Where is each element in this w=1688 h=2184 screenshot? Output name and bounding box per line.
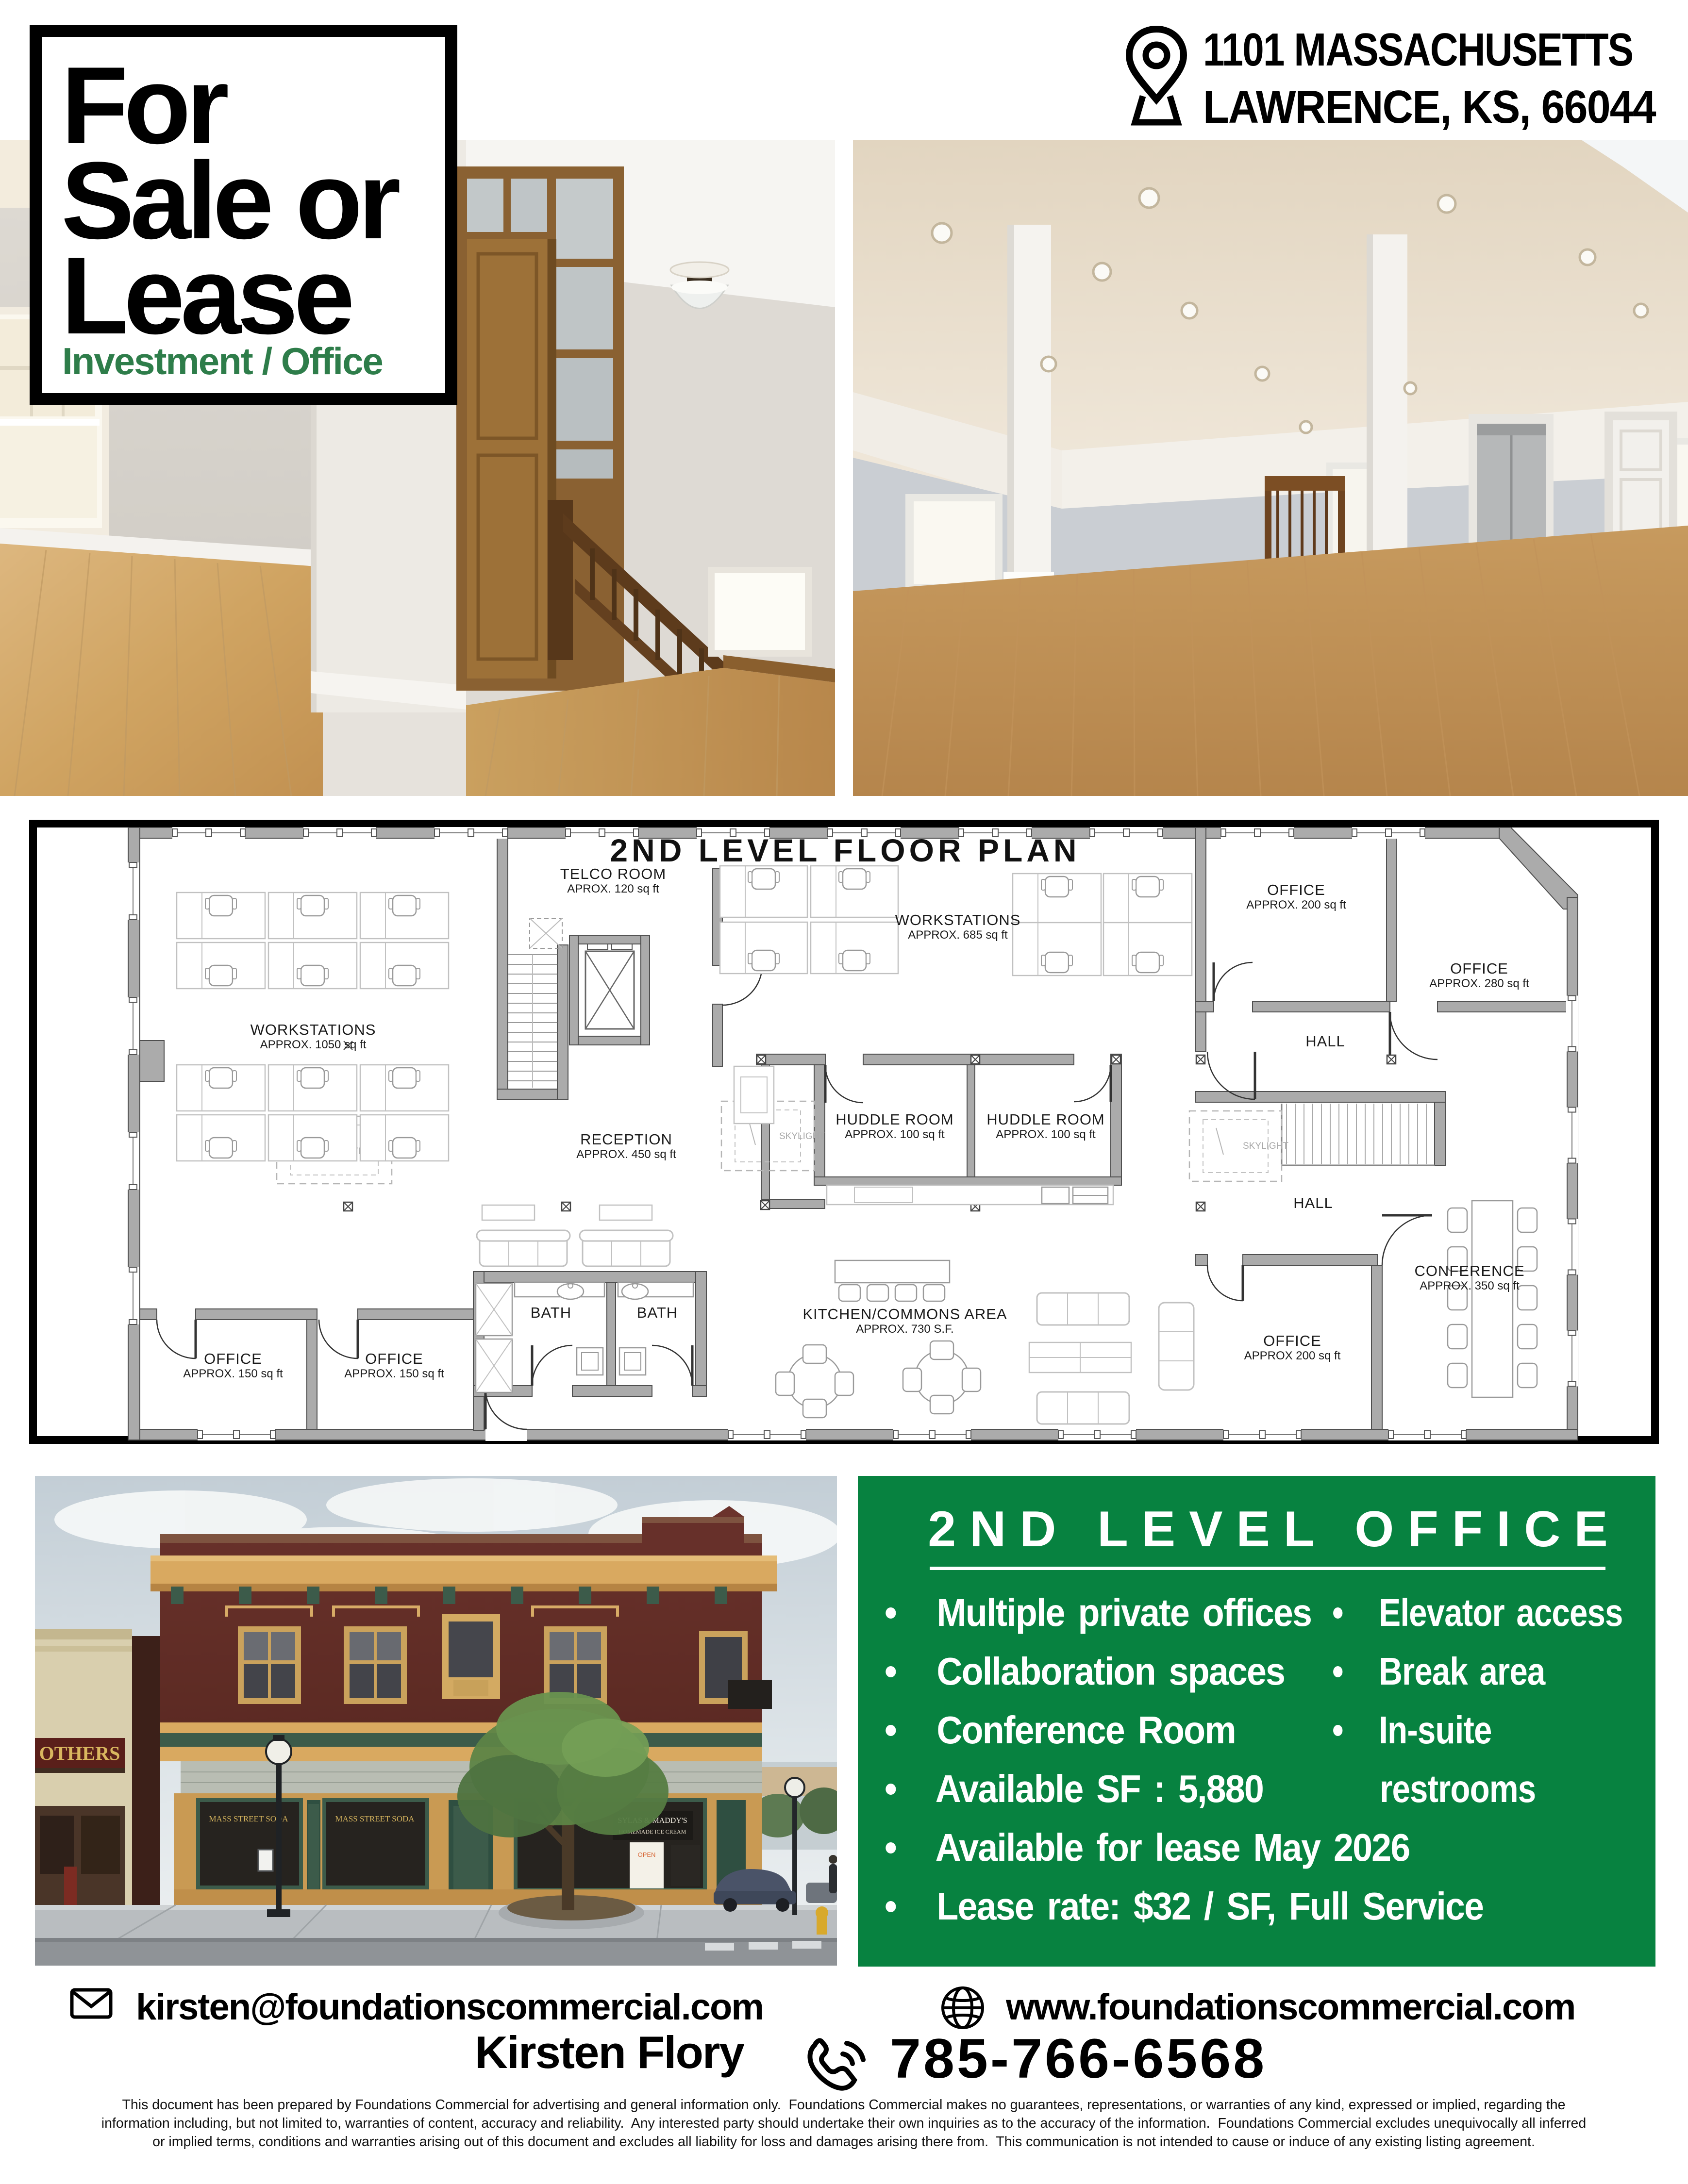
svg-text:OFFICE: OFFICE (1267, 881, 1325, 898)
svg-text:OTHERS: OTHERS (39, 1742, 120, 1764)
svg-text:APPROX. 100 sq ft: APPROX. 100 sq ft (845, 1128, 945, 1141)
svg-text:OPEN: OPEN (638, 1851, 656, 1858)
svg-text:APPROX. 280 sq ft: APPROX. 280 sq ft (1429, 977, 1529, 990)
svg-text:TELCO ROOM: TELCO ROOM (560, 865, 666, 882)
svg-text:WORKSTATIONS: WORKSTATIONS (251, 1021, 376, 1038)
svg-text:BATH: BATH (637, 1304, 678, 1321)
svg-text:OFFICE: OFFICE (1263, 1332, 1321, 1349)
svg-text:SKYLIGHT: SKYLIGHT (1243, 1141, 1288, 1151)
svg-text:RECEPTION: RECEPTION (580, 1131, 672, 1148)
svg-text:OFFICE: OFFICE (365, 1350, 423, 1367)
svg-text:APPROX. 1050 sq ft: APPROX. 1050 sq ft (260, 1038, 367, 1051)
svg-text:OFFICE: OFFICE (204, 1350, 262, 1367)
svg-text:KITCHEN/COMMONS AREA: KITCHEN/COMMONS AREA (802, 1306, 1007, 1323)
svg-text:APPROX. 730 S.F.: APPROX. 730 S.F. (856, 1323, 953, 1336)
svg-text:APPROX. 200 sq ft: APPROX. 200 sq ft (1246, 898, 1346, 911)
svg-text:APPROX. 685 sq ft: APPROX. 685 sq ft (908, 928, 1008, 942)
svg-text:MASS STREET SODA: MASS STREET SODA (335, 1814, 415, 1823)
svg-text:APPROX. 450 sq ft: APPROX. 450 sq ft (576, 1148, 676, 1161)
svg-text:APPROX. 350 sq ft: APPROX. 350 sq ft (1420, 1279, 1520, 1292)
svg-text:APPROX 200 sq ft: APPROX 200 sq ft (1244, 1349, 1341, 1362)
svg-text:SKYLIGHT: SKYLIGHT (779, 1131, 825, 1142)
svg-text:APPROX. 100 sq ft: APPROX. 100 sq ft (996, 1128, 1096, 1141)
svg-text:OFFICE: OFFICE (1450, 960, 1508, 977)
svg-text:WORKSTATIONS: WORKSTATIONS (895, 911, 1021, 928)
svg-text:APROX. 120 sq ft: APROX. 120 sq ft (567, 882, 659, 895)
svg-text:BATH: BATH (531, 1304, 571, 1321)
svg-text:HALL: HALL (1293, 1194, 1333, 1211)
svg-text:APPROX. 150 sq ft: APPROX. 150 sq ft (183, 1367, 283, 1380)
svg-text:HUDDLE ROOM: HUDDLE ROOM (836, 1111, 954, 1128)
svg-text:2ND LEVEL FLOOR PLAN: 2ND LEVEL FLOOR PLAN (610, 832, 1080, 868)
svg-text:APPROX. 150 sq ft: APPROX. 150 sq ft (344, 1367, 444, 1380)
svg-text:HUDDLE ROOM: HUDDLE ROOM (986, 1111, 1105, 1128)
svg-text:CONFERENCE: CONFERENCE (1414, 1262, 1524, 1279)
svg-text:HALL: HALL (1305, 1033, 1345, 1050)
